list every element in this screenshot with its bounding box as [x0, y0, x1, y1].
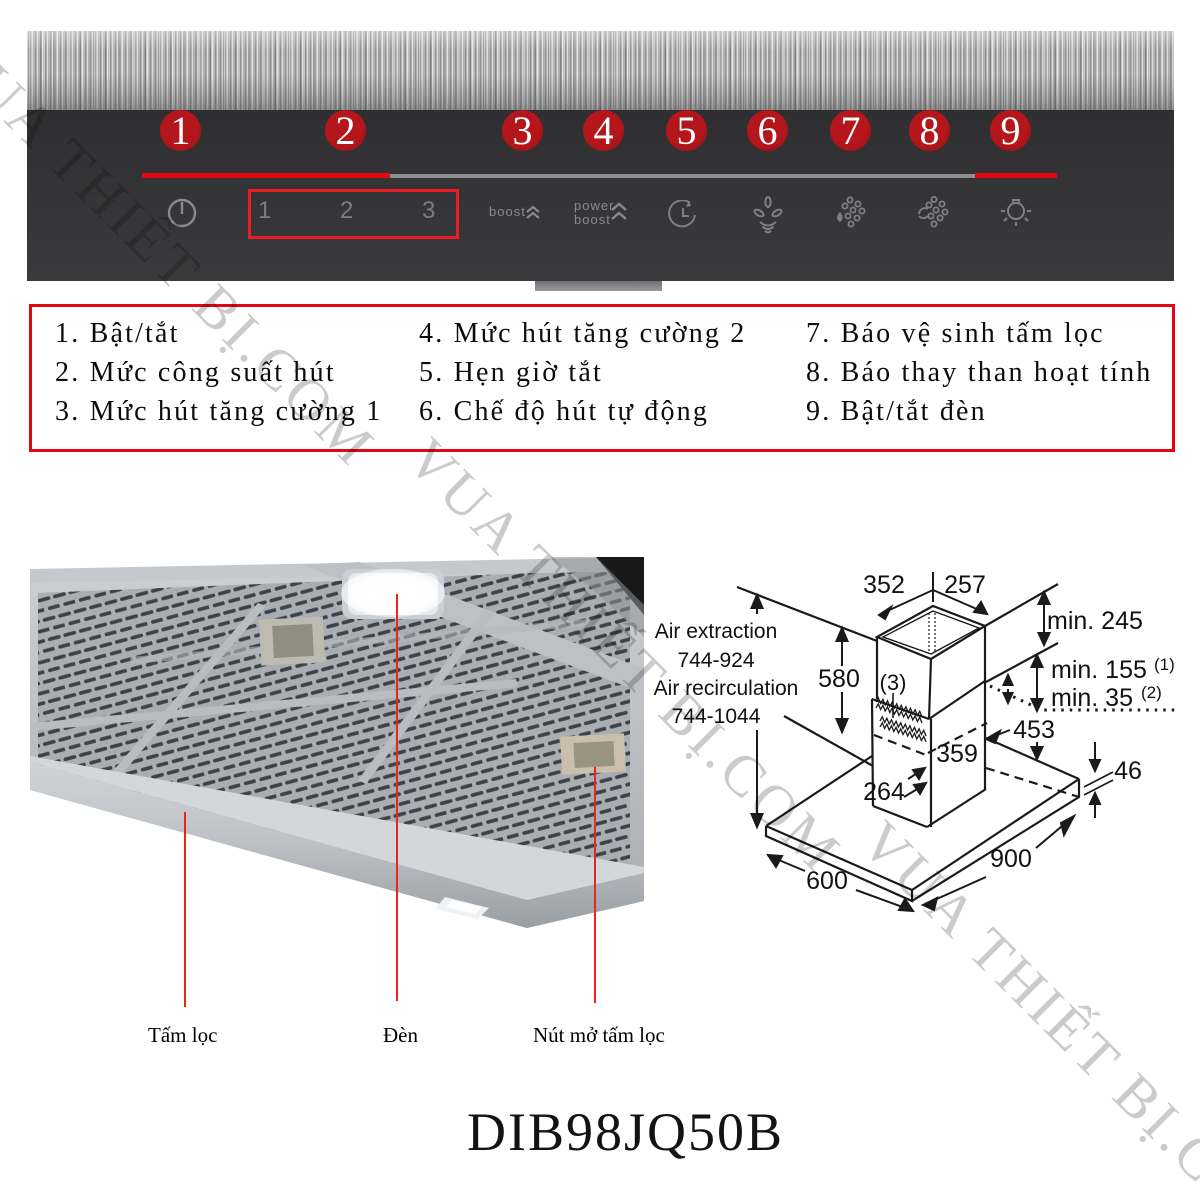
svg-text:257: 257 [944, 571, 986, 599]
svg-text:900: 900 [990, 845, 1032, 873]
svg-text:600: 600 [806, 867, 848, 895]
svg-text:(1): (1) [1154, 655, 1175, 674]
svg-text:min. 155: min. 155 [1051, 656, 1147, 684]
svg-text:Air extraction: Air extraction [655, 620, 778, 643]
svg-text:453: 453 [1013, 716, 1055, 744]
svg-text:352: 352 [863, 571, 905, 599]
svg-text:Air recirculation: Air recirculation [654, 677, 799, 700]
svg-text:min. 35: min. 35 [1051, 684, 1133, 712]
svg-text:46: 46 [1114, 757, 1142, 785]
svg-text:359: 359 [936, 740, 978, 768]
svg-text:744-924: 744-924 [677, 649, 754, 672]
svg-text:264: 264 [863, 778, 905, 806]
svg-text:744-1044: 744-1044 [672, 705, 761, 728]
svg-text:min. 245: min. 245 [1047, 607, 1143, 635]
svg-text:580: 580 [818, 665, 860, 693]
svg-text:(2): (2) [1141, 683, 1162, 702]
svg-text:(3): (3) [880, 670, 907, 695]
